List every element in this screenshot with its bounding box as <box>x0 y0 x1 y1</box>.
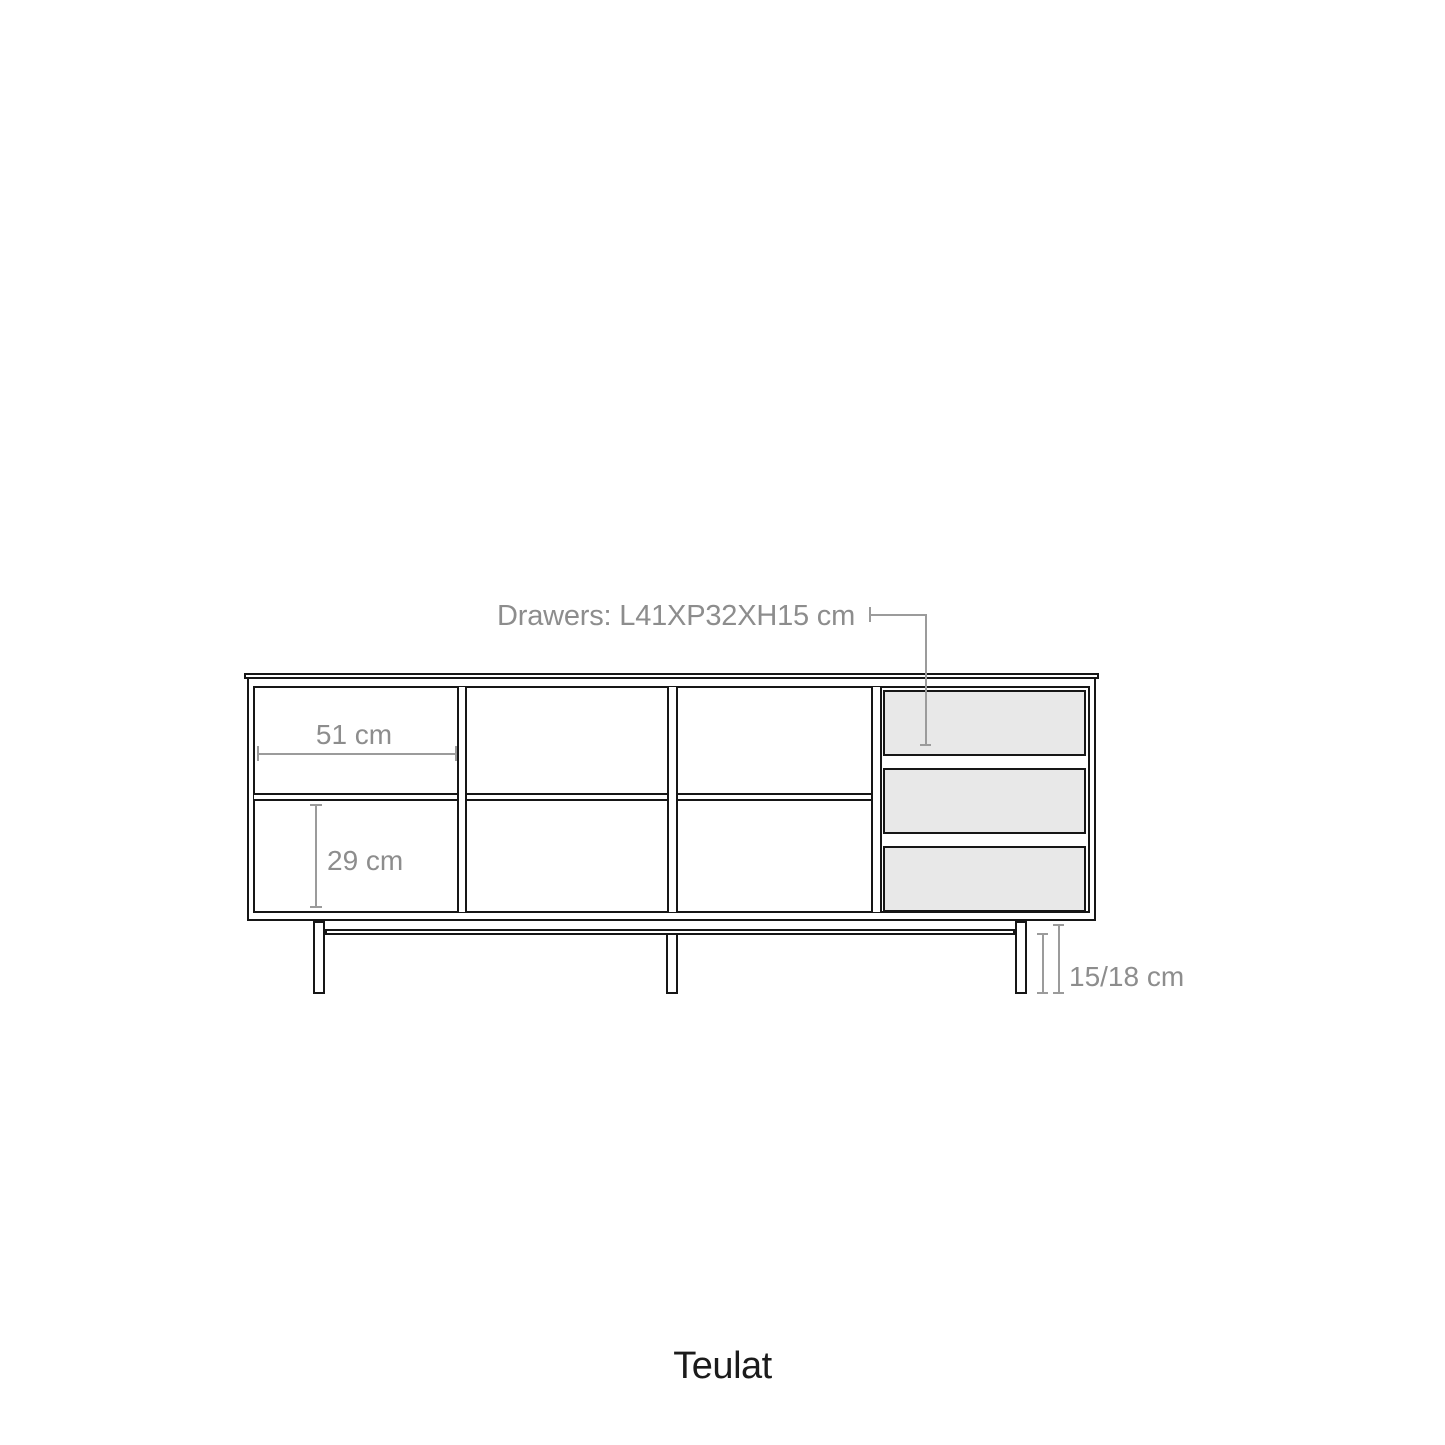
compartment-height-bottom-tick <box>310 906 322 908</box>
compartment-height-dimension-line <box>315 805 317 908</box>
compartment-width-right-tick <box>455 746 457 761</box>
compartment-width-dimension-line <box>257 753 457 755</box>
drawer-top <box>883 690 1086 756</box>
leg-height-short-bottom-tick <box>1037 992 1048 994</box>
drawers-size-label: Drawers: L41XP32XH15 cm <box>497 600 855 632</box>
leg-height-short-top-tick <box>1037 933 1048 935</box>
leader-vertical-line <box>925 614 927 745</box>
cabinet-divider-2 <box>667 687 678 912</box>
compartment-height-label: 29 cm <box>327 846 403 876</box>
diagram-canvas: Drawers: L41XP32XH15 cm 51 cm 29 cm 15/1… <box>0 0 1445 1445</box>
cabinet-shelf <box>254 793 872 801</box>
cabinet-divider-1 <box>457 687 467 912</box>
brand-logo: Teulat <box>0 1346 1445 1386</box>
leader-horizontal-line <box>869 614 927 616</box>
cabinet-divider-3 <box>871 687 882 912</box>
leg-height-short-line <box>1042 934 1044 994</box>
leg-height-label: 15/18 cm <box>1069 962 1184 992</box>
leader-end-tick <box>920 744 931 746</box>
leg-center <box>666 929 678 994</box>
drawer-bottom <box>883 846 1086 912</box>
leg-height-tall-line <box>1058 925 1060 994</box>
leg-rail <box>325 929 1015 935</box>
compartment-height-top-tick <box>310 804 322 806</box>
drawer-middle <box>883 768 1086 834</box>
leg-right <box>1015 921 1027 994</box>
leg-height-tall-bottom-tick <box>1053 992 1064 994</box>
compartment-width-left-tick <box>257 746 259 761</box>
leg-left <box>313 921 325 994</box>
leg-height-tall-top-tick <box>1053 924 1064 926</box>
compartment-width-label: 51 cm <box>304 720 404 750</box>
